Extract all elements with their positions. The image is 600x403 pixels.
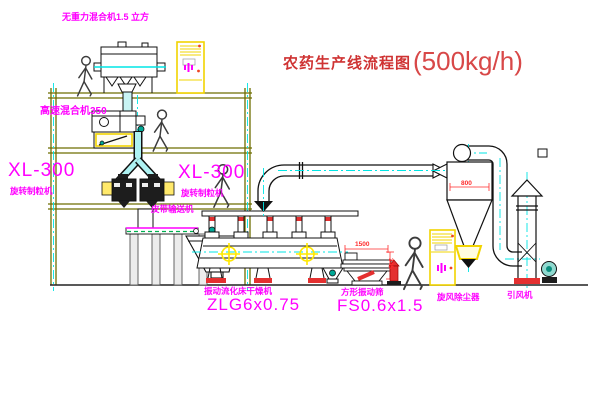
label-granulator-right-model: XL-300	[178, 163, 245, 182]
label-high-speed-mixer: 高速混合机350	[40, 107, 107, 117]
label-fan: 引风机	[507, 291, 533, 300]
gravity-mixer	[94, 42, 165, 112]
label-cyclone: 旋风除尘器	[437, 293, 480, 302]
dim-screen-height: 345	[387, 258, 394, 269]
label-screen-model: FS0.6x1.5	[337, 297, 424, 314]
dim-cyclone-width: 800	[461, 180, 472, 187]
dryer-mounts	[205, 216, 335, 238]
diagram-title: 农药生产线流程图 (500kg/h)	[283, 46, 523, 77]
label-granulator-left-model: XL-300	[8, 161, 75, 180]
person-figure	[404, 238, 423, 290]
person-figure	[78, 57, 92, 96]
person-figure	[153, 110, 168, 151]
flow-diagram-canvas: 农药生产线流程图 (500kg/h) 无重力混合机1.5 立方 高速混合机350…	[0, 0, 600, 403]
induced-draft-fan	[542, 262, 558, 284]
control-cabinet-lower	[430, 230, 455, 285]
label-granulator-right-name: 旋转制粒机	[181, 189, 224, 198]
cyclone-collector	[456, 246, 481, 259]
label-belt-conveyor: 皮带输送机	[151, 205, 194, 214]
label-dryer-model: ZLG6x0.75	[207, 296, 300, 313]
granulator-right	[140, 174, 174, 208]
control-cabinet-upper	[177, 42, 204, 93]
vibrating-screen	[341, 253, 393, 285]
diagram-title-capacity: (500kg/h)	[413, 46, 523, 77]
label-granulator-left-name: 旋转制粒机	[10, 187, 53, 196]
granulator-left	[102, 174, 136, 208]
dim-screen-length: 1500	[355, 241, 369, 248]
diagram-title-text: 农药生产线流程图	[283, 52, 411, 77]
belt-conveyor	[126, 228, 198, 234]
label-gravity-mixer: 无重力混合机1.5 立方	[62, 13, 149, 22]
